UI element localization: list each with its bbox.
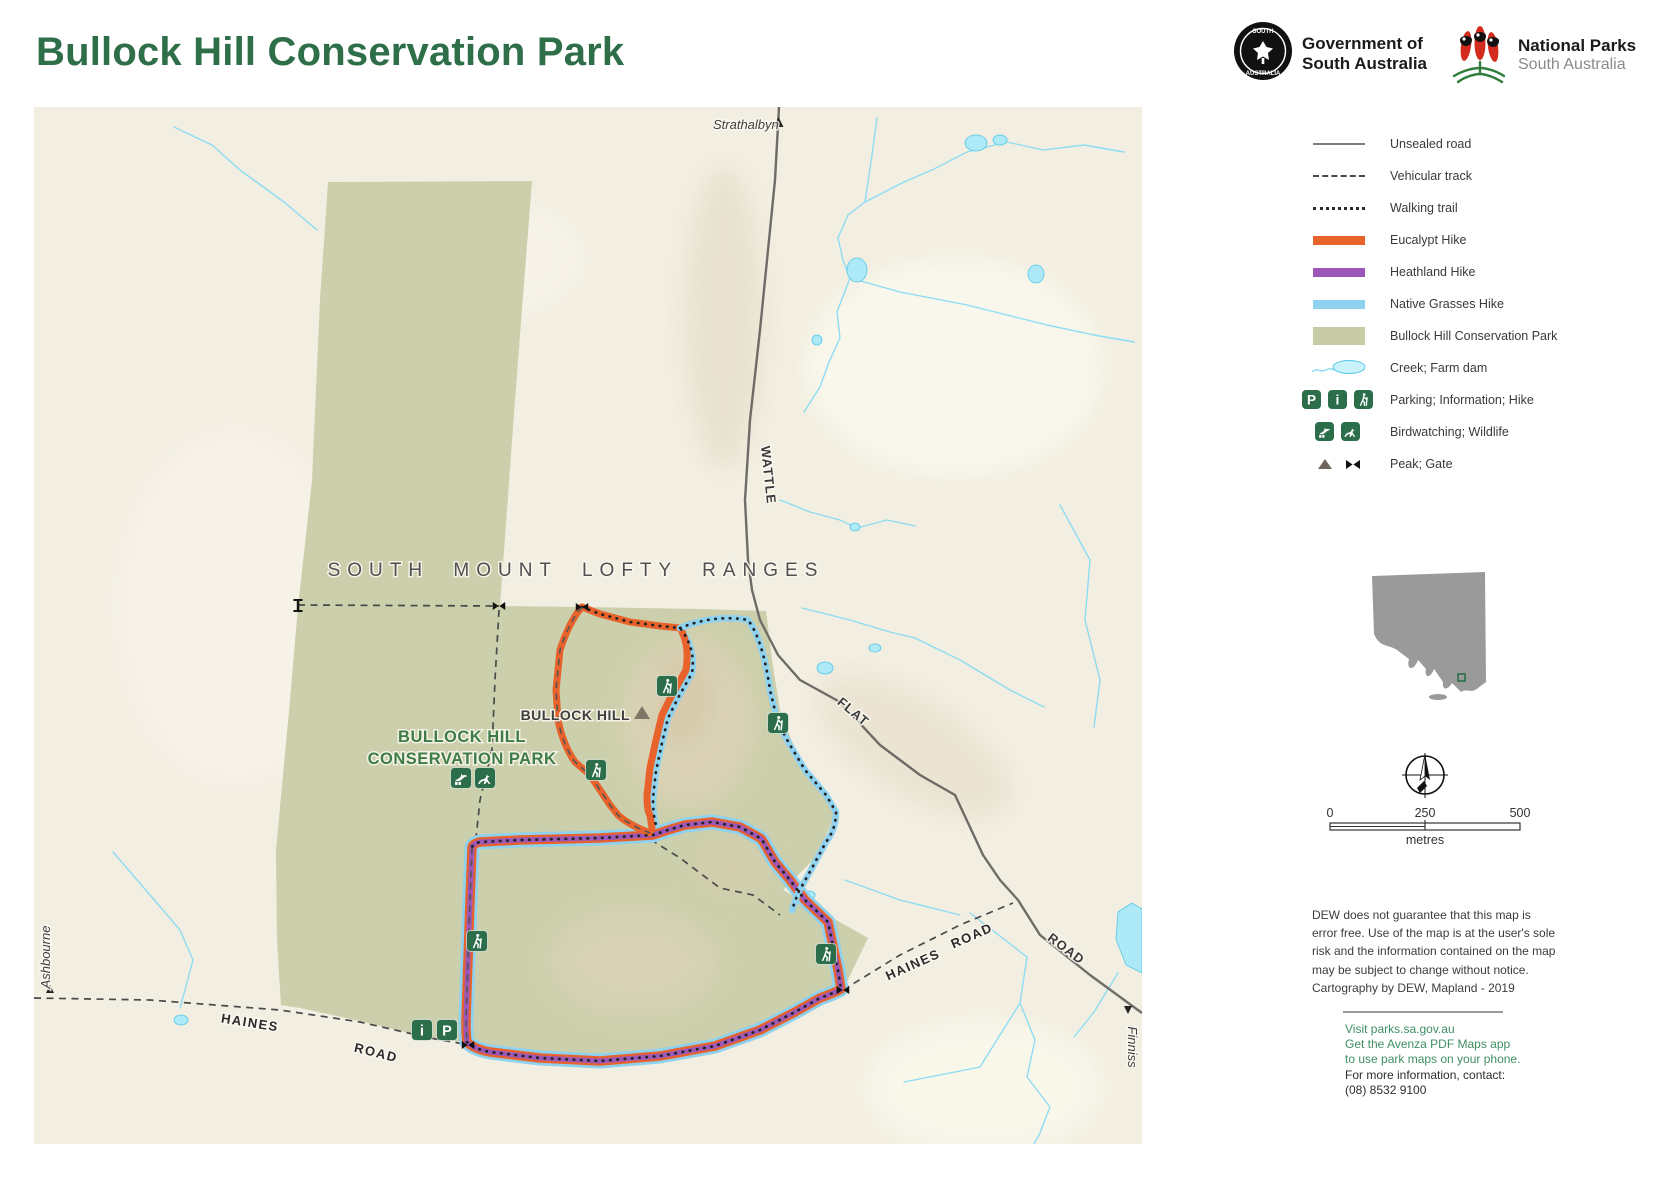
avenza-app-line1: Get the Avenza PDF Maps app [1345,1037,1520,1052]
disclaimer-line: may be subject to change without notice. [1312,961,1572,979]
scale-start: 0 [1327,806,1334,820]
disclaimer-line: error free. Use of the map is at the use… [1312,924,1572,942]
compass-rose-icon [1402,748,1448,802]
unsealed-road-symbol [1301,143,1377,145]
legend-item-walking-trail: Walking trail [1301,192,1661,224]
svg-text:P: P [1307,393,1316,408]
legend-label: Bullock Hill Conservation Park [1390,329,1557,343]
svg-text:P: P [442,1024,452,1040]
legend-item-vehicular-track: Vehicular track [1301,160,1661,192]
scale-middle: 250 [1415,806,1436,820]
legend-item-unsealed-road: Unsealed road [1301,128,1661,160]
birdwatching-icon [1315,422,1334,441]
national-parks-logo-line2: South Australia [1518,56,1626,74]
legend-label: Parking; Information; Hike [1390,393,1534,407]
south-australia-inset-map [1364,570,1494,718]
legend-label: Heathland Hike [1390,265,1475,279]
disclaimer: DEW does not guarantee that this map is … [1312,906,1572,997]
creek-dam-symbol [1301,357,1377,379]
birdwatching-wildlife-symbols [1301,422,1377,442]
legend-item-parking-info-hike: P i Parking; Information; Hike [1301,384,1661,416]
parking-icon: P [437,1020,458,1041]
national-parks-logo-line1: National Parks [1518,36,1636,56]
legend-label: Birdwatching; Wildlife [1390,425,1509,439]
parking-information-hike-symbols: P i [1301,390,1377,410]
eucalypt-hike-symbol [1301,236,1377,245]
information-icon: i [412,1020,433,1041]
scale-unit: metres [1406,833,1444,847]
desert-pea-icon [1450,18,1508,88]
svg-text:i: i [420,1023,424,1040]
legend-label: Peak; Gate [1390,457,1453,471]
legend-item-creek-dam: Creek; Farm dam [1301,352,1661,384]
government-logo-text: Government of South Australia [1302,34,1427,74]
legend-label: Eucalypt Hike [1390,233,1466,247]
legend-label: Native Grasses Hike [1390,297,1504,311]
park-map: i P SOUTH MOUNT LOFTY RANGES BULLOCK HIL… [34,107,1142,1144]
legend-item-peak-gate: Peak; Gate [1301,448,1661,480]
peak-icon [1318,459,1332,469]
information-icon: i [1328,390,1347,409]
disclaimer-line: DEW does not guarantee that this map is [1312,906,1572,924]
contact-line: For more information, contact: [1345,1068,1520,1083]
contact-phone: (08) 8532 9100 [1345,1083,1520,1098]
footer-divider [1343,1011,1503,1013]
peak-gate-symbols [1301,458,1377,470]
vehicular-track-symbol [1301,175,1377,177]
avenza-app-line2: to use park maps on your phone. [1345,1052,1520,1067]
park-map-page: { "header": { "title": "Bullock Hill Con… [0,0,1674,1179]
town-label-ashbourne: Ashbourne [38,926,53,990]
heathland-hike-symbol [1301,268,1377,277]
svg-text:AUSTRALIA: AUSTRALIA [1246,71,1281,77]
gov-logo-line2: South Australia [1302,54,1427,74]
region-label: SOUTH MOUNT LOFTY RANGES [328,560,825,581]
walking-trail-symbol [1301,207,1377,210]
svg-text:i: i [1336,392,1340,408]
legend-item-native-grasses-hike: Native Grasses Hike [1301,288,1661,320]
parks-website-link[interactable]: Visit parks.sa.gov.au [1345,1022,1520,1037]
park-name-line2: CONSERVATION PARK [368,750,557,768]
footer: Visit parks.sa.gov.au Get the Avenza PDF… [1345,1022,1520,1098]
legend-label: Unsealed road [1390,137,1471,151]
gate-icon [1346,460,1360,469]
scale-end: 500 [1510,806,1531,820]
scale-bar: 0 250 500 metres [1322,806,1532,850]
gov-logo-line1: Government of [1302,34,1427,54]
disclaimer-line: Cartography by DEW, Mapland - 2019 [1312,979,1572,997]
sa-government-crest-icon: SOUTH AUSTRALIA [1233,21,1295,83]
hike-icon [1354,390,1373,409]
legend-item-birdwatching-wildlife: Birdwatching; Wildlife [1301,416,1661,448]
legend-item-park: Bullock Hill Conservation Park [1301,320,1661,352]
page-title: Bullock Hill Conservation Park [36,30,624,75]
town-label-finniss: Finniss [1125,1026,1140,1068]
park-fill-symbol [1301,327,1377,345]
peak-label: BULLOCK HILL [521,707,630,723]
park-name-line1: BULLOCK HILL [398,728,526,746]
disclaimer-line: risk and the information contained on th… [1312,942,1572,960]
town-label-strathalbyn: Strathalbyn [713,117,779,132]
legend-item-heathland-hike: Heathland Hike [1301,256,1661,288]
legend: Unsealed road Vehicular track Walking tr… [1301,128,1661,480]
svg-text:SOUTH: SOUTH [1253,29,1274,35]
legend-label: Walking trail [1390,201,1458,215]
wildlife-icon [1341,422,1360,441]
native-grasses-hike-symbol [1301,300,1377,309]
legend-label: Vehicular track [1390,169,1472,183]
legend-label: Creek; Farm dam [1390,361,1487,375]
legend-item-eucalypt-hike: Eucalypt Hike [1301,224,1661,256]
parking-icon: P [1302,390,1321,409]
